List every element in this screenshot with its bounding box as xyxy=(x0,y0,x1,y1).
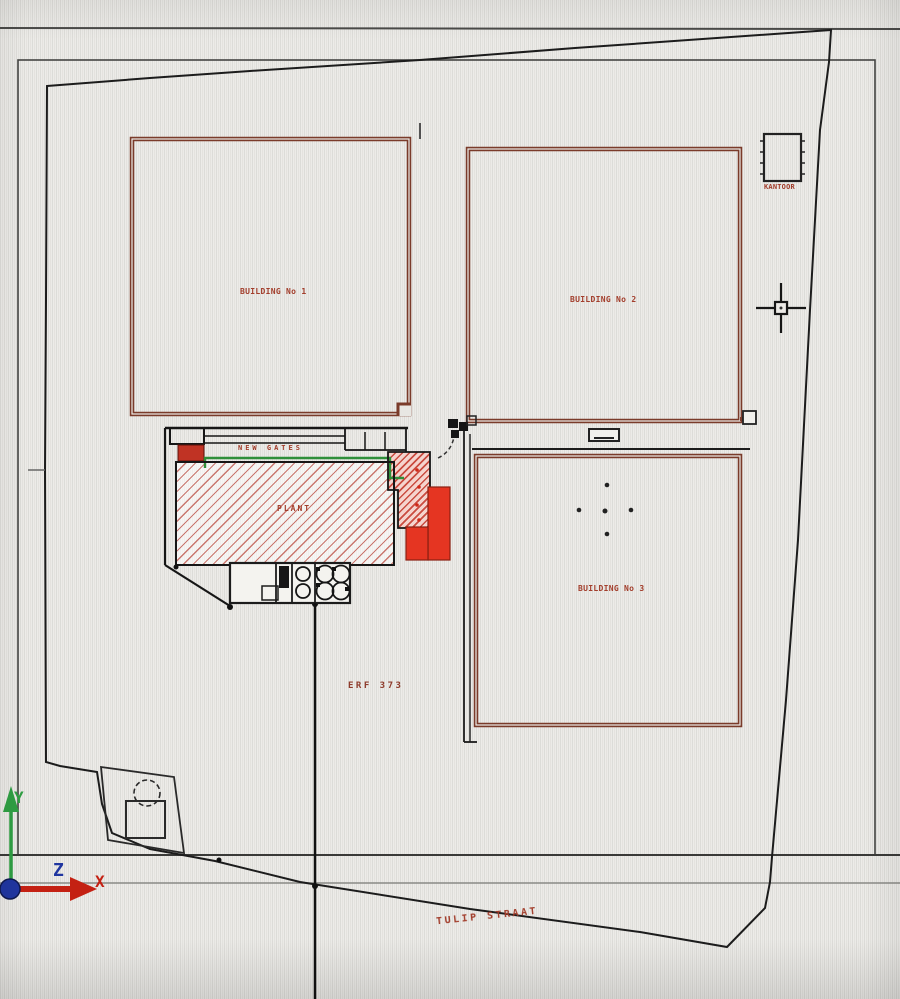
building-1-outline xyxy=(132,123,420,416)
equipment-block xyxy=(279,566,289,588)
dashed-arc xyxy=(438,437,454,458)
red-block-2 xyxy=(406,527,428,560)
boundary-node-dot xyxy=(217,858,222,863)
building-1-label: BUILDING No 1 xyxy=(240,287,307,296)
x-axis-arrowhead xyxy=(70,877,97,901)
column-dots xyxy=(577,483,634,537)
erf-number-label: ERF 373 xyxy=(348,681,403,691)
new-gates-label: NEW GATES xyxy=(238,444,303,452)
crosshair-marker xyxy=(756,283,806,333)
kantoor-label: KANTOOR xyxy=(764,183,795,191)
drawing-linework xyxy=(0,0,900,999)
building-3-label: BUILDING No 3 xyxy=(578,584,645,593)
ucs-y-label: Y xyxy=(14,788,24,807)
paper-border xyxy=(18,60,875,855)
plant-label: PLANT xyxy=(277,504,311,513)
kantoor-box xyxy=(760,134,805,181)
top-edge-line xyxy=(0,28,900,29)
gate-post-square xyxy=(743,411,756,424)
road-lines xyxy=(438,416,750,742)
gate-symbol xyxy=(589,429,619,441)
hatch-dots xyxy=(415,468,421,522)
ucs-z-label: Z xyxy=(53,860,64,881)
cad-viewport[interactable]: BUILDING No 1 BUILDING No 2 BUILDING No … xyxy=(0,0,900,999)
plant-rooms xyxy=(230,563,350,603)
guard-plot xyxy=(101,767,184,853)
red-block-1 xyxy=(428,487,450,560)
guard-structure xyxy=(126,801,165,838)
ucs-x-label: X xyxy=(95,872,105,891)
ucs-origin-sphere xyxy=(0,879,20,899)
tree-circle xyxy=(134,780,160,806)
building-2-label: BUILDING No 2 xyxy=(570,295,637,304)
small-red-box xyxy=(178,445,204,461)
valve-squares xyxy=(448,419,468,438)
building-2-outline xyxy=(468,149,756,424)
